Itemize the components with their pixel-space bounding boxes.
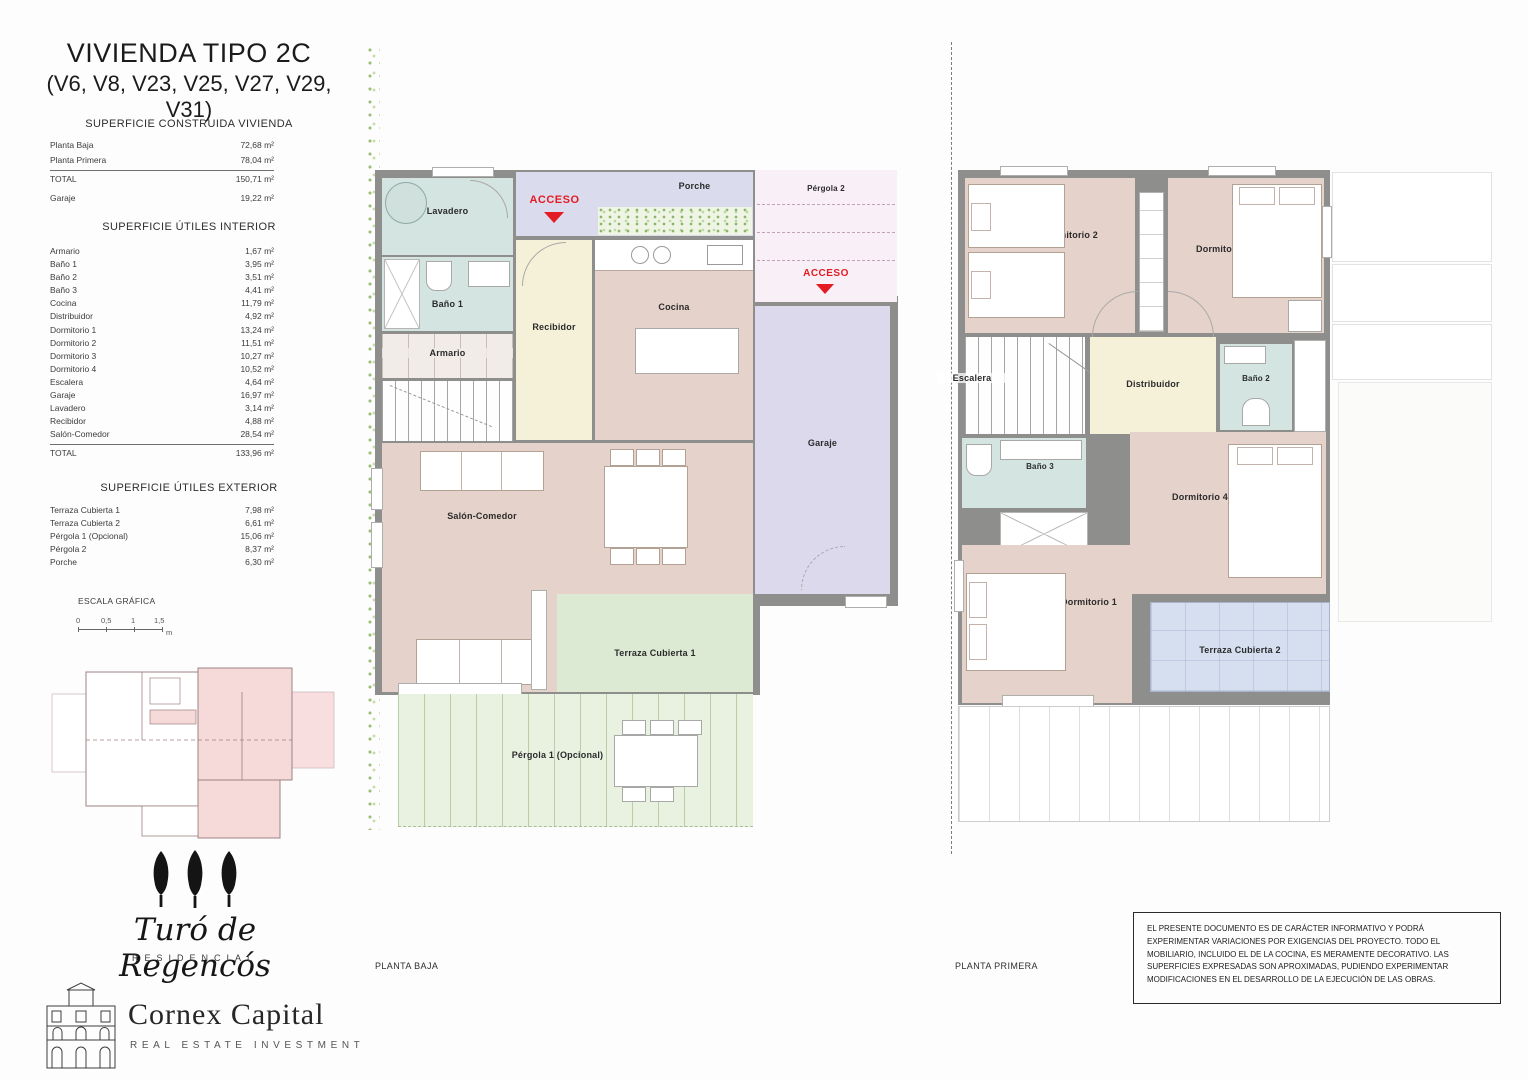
room-label-recibidor: Recibidor [516, 322, 592, 332]
chair [662, 548, 686, 565]
hedge-strip [598, 207, 752, 235]
plot-boundary-dashed [951, 42, 952, 854]
table-row: Porche6,30 m² [50, 557, 274, 570]
table-total-row: TOTAL133,96 m² [50, 444, 274, 461]
garage-door-opening [845, 596, 887, 608]
window [954, 560, 964, 612]
chair [610, 449, 634, 466]
sliding-door [531, 590, 547, 690]
table-row: Dormitorio 310,27 m² [50, 351, 274, 364]
table-row: Baño 13,95 m² [50, 259, 274, 272]
acceso-arrow-icon [816, 284, 834, 294]
room-distribuidor: Distribuidor [1090, 337, 1216, 434]
cypress-trees-icon [147, 850, 243, 914]
table-row: Garaje19,22 m² [50, 193, 274, 208]
outdoor-table [614, 735, 698, 787]
table-row: Lavadero3,14 m² [50, 403, 274, 416]
dining-table [604, 466, 688, 548]
interior-area-heading: SUPERFICIE ÚTILES INTERIOR [28, 221, 350, 233]
pillow [971, 271, 991, 299]
built-area-heading: SUPERFICIE CONSTRUIDA VIVIENDA [28, 118, 350, 130]
scale-line [78, 629, 162, 630]
stairs-first-floor: Escalera [965, 337, 1085, 434]
room-label-garaje: Garaje [755, 438, 890, 448]
table-row: Planta Baja72,68 m² [50, 140, 274, 155]
key-plan [46, 662, 340, 850]
bed [966, 573, 1066, 671]
bed [1232, 184, 1322, 298]
cornex-building-icon [44, 982, 118, 1070]
bed [968, 184, 1065, 248]
info-panel: VIVIENDA TIPO 2C (V6, V8, V23, V25, V27,… [28, 38, 350, 123]
room-label-bano2: Baño 2 [1220, 374, 1292, 383]
room-label-terraza2: Terraza Cubierta 2 [1151, 645, 1329, 655]
chair [636, 548, 660, 565]
room-bano3: Baño 3 [962, 438, 1086, 508]
room-label-distribuidor: Distribuidor [1090, 379, 1216, 389]
bed [968, 252, 1065, 318]
table-row: Baño 23,51 m² [50, 272, 274, 285]
room-label-salon: Salón-Comedor [362, 511, 602, 521]
table-row: TOTAL150,71 m² [50, 171, 274, 189]
disclaimer-box: EL PRESENTE DOCUMENTO ES DE CARÁCTER INF… [1133, 912, 1501, 1004]
table-row: Recibidor4,88 m² [50, 416, 274, 429]
pillow [1239, 187, 1275, 205]
interior-area-table: Armario1,67 m² Baño 13,95 m² Baño 23,51 … [50, 246, 274, 462]
room-pergola2: Pérgola 2 ACCESO [755, 170, 897, 302]
kitchen-counter [595, 240, 753, 271]
room-bano1: Baño 1 [382, 257, 513, 331]
exterior-area-heading: SUPERFICIE ÚTILES EXTERIOR [28, 482, 350, 494]
room-recibidor: Recibidor [516, 240, 592, 440]
page-title: VIVIENDA TIPO 2C [28, 38, 350, 69]
room-dormitorio4: Dormitorio 4 [1130, 432, 1326, 594]
neighbour-outline [1332, 172, 1492, 262]
chair [650, 720, 674, 735]
room-dormitorio1: Dormitorio 1 [962, 545, 1132, 703]
sink-counter [1000, 440, 1082, 460]
pergola-roof-strip [958, 706, 1330, 822]
kitchen-sink [707, 245, 743, 265]
chair [622, 787, 646, 802]
built-area-table: Planta Baja72,68 m² Planta Primera78,04 … [50, 140, 274, 208]
room-lavadero: Lavadero [382, 178, 513, 255]
toilet [966, 444, 992, 476]
room-label-cocina: Cocina [595, 302, 753, 312]
window [1322, 206, 1332, 258]
table-row: Garaje16,97 m² [50, 390, 274, 403]
window [432, 167, 494, 177]
room-porche: Porche ACCESO [516, 172, 753, 236]
neighbour-outline [1338, 382, 1492, 622]
table-row: Cocina11,79 m² [50, 298, 274, 311]
table-row: Armario1,67 m² [50, 246, 274, 259]
scale-bar: 0 0,5 1 1,5 m [78, 616, 178, 636]
door-arc [470, 180, 508, 218]
room-label-bano3: Baño 3 [978, 462, 1102, 471]
sink [468, 261, 510, 287]
room-terraza2: Terraza Cubierta 2 [1150, 602, 1330, 692]
window [1000, 166, 1068, 176]
exterior-area-table: Terraza Cubierta 17,98 m² Terraza Cubier… [50, 505, 274, 570]
room-pergola1: Pérgola 1 (Opcional) [398, 694, 753, 827]
table-row: Escalera4,64 m² [50, 377, 274, 390]
pillow [971, 203, 991, 231]
table-row: Distribuidor4,92 m² [50, 311, 274, 324]
shower [384, 259, 420, 329]
window [1208, 166, 1276, 176]
room-label-armario: Armario [382, 348, 513, 358]
pillow [1279, 187, 1315, 205]
plan-caption-primera: PLANTA PRIMERA [955, 961, 1038, 971]
chair [610, 548, 634, 565]
sofa [416, 639, 544, 685]
toilet [1242, 398, 1270, 426]
table-row: Dormitorio 410,52 m² [50, 364, 274, 377]
project-logo-text: Turó de Regencós [60, 912, 330, 984]
stairs-ground-floor [382, 381, 513, 441]
company-logo-subtext: REAL ESTATE INVESTMENT [130, 1040, 364, 1051]
chair [678, 720, 702, 735]
washing-machine [385, 182, 427, 224]
table-row: Dormitorio 113,24 m² [50, 325, 274, 338]
room-garaje: Garaje [755, 306, 890, 594]
window [371, 522, 383, 568]
plan-caption-baja: PLANTA BAJA [375, 961, 438, 971]
table-row: Terraza Cubierta 17,98 m² [50, 505, 274, 518]
garage-door-arc [801, 546, 845, 590]
room-label-terraza1: Terraza Cubierta 1 [557, 648, 753, 658]
table-row: Salón-Comedor28,54 m² [50, 429, 274, 442]
chair [622, 720, 646, 735]
kitchen-island [635, 328, 739, 374]
pillow [969, 624, 987, 660]
table-row: Pérgola 1 (Opcional)15,06 m² [50, 531, 274, 544]
pillow [969, 582, 987, 618]
closet [1294, 340, 1326, 432]
window [371, 468, 383, 510]
room-terraza1: Terraza Cubierta 1 [557, 594, 753, 692]
room-bano2: Baño 2 [1220, 344, 1292, 430]
closet [1139, 192, 1164, 332]
room-label-pergola2: Pérgola 2 [755, 184, 897, 193]
chair [636, 449, 660, 466]
neighbour-outline [1332, 324, 1492, 380]
chair [662, 449, 686, 466]
project-logo-subtext: RESIDENCIAL [60, 953, 330, 963]
pillow [1237, 447, 1273, 465]
chair [650, 787, 674, 802]
neighbour-outline [1332, 264, 1492, 322]
closet [1288, 300, 1322, 332]
table-row: Pérgola 28,37 m² [50, 544, 274, 557]
table-row: Terraza Cubierta 26,61 m² [50, 518, 274, 531]
scale-heading: ESCALA GRÁFICA [78, 596, 155, 606]
sink [1224, 346, 1266, 364]
table-row: Planta Primera78,04 m² [50, 155, 274, 171]
table-row: Dormitorio 211,51 m² [50, 338, 274, 351]
acceso-label-2: ACCESO [755, 268, 897, 279]
table-row: Baño 34,41 m² [50, 285, 274, 298]
acceso-arrow-icon [544, 212, 564, 223]
room-cocina: Cocina [595, 240, 753, 440]
bed [1228, 444, 1322, 578]
pillow [1277, 447, 1313, 465]
sofa [420, 451, 544, 491]
page-subtitle: (V6, V8, V23, V25, V27, V29, V31) [28, 71, 350, 123]
room-armario: Armario [382, 334, 513, 378]
entry-door-arc [522, 242, 566, 286]
company-logo-text: Cornex Capital [128, 998, 324, 1032]
toilet [426, 261, 452, 291]
room-label-escalera: Escalera [937, 373, 1007, 383]
